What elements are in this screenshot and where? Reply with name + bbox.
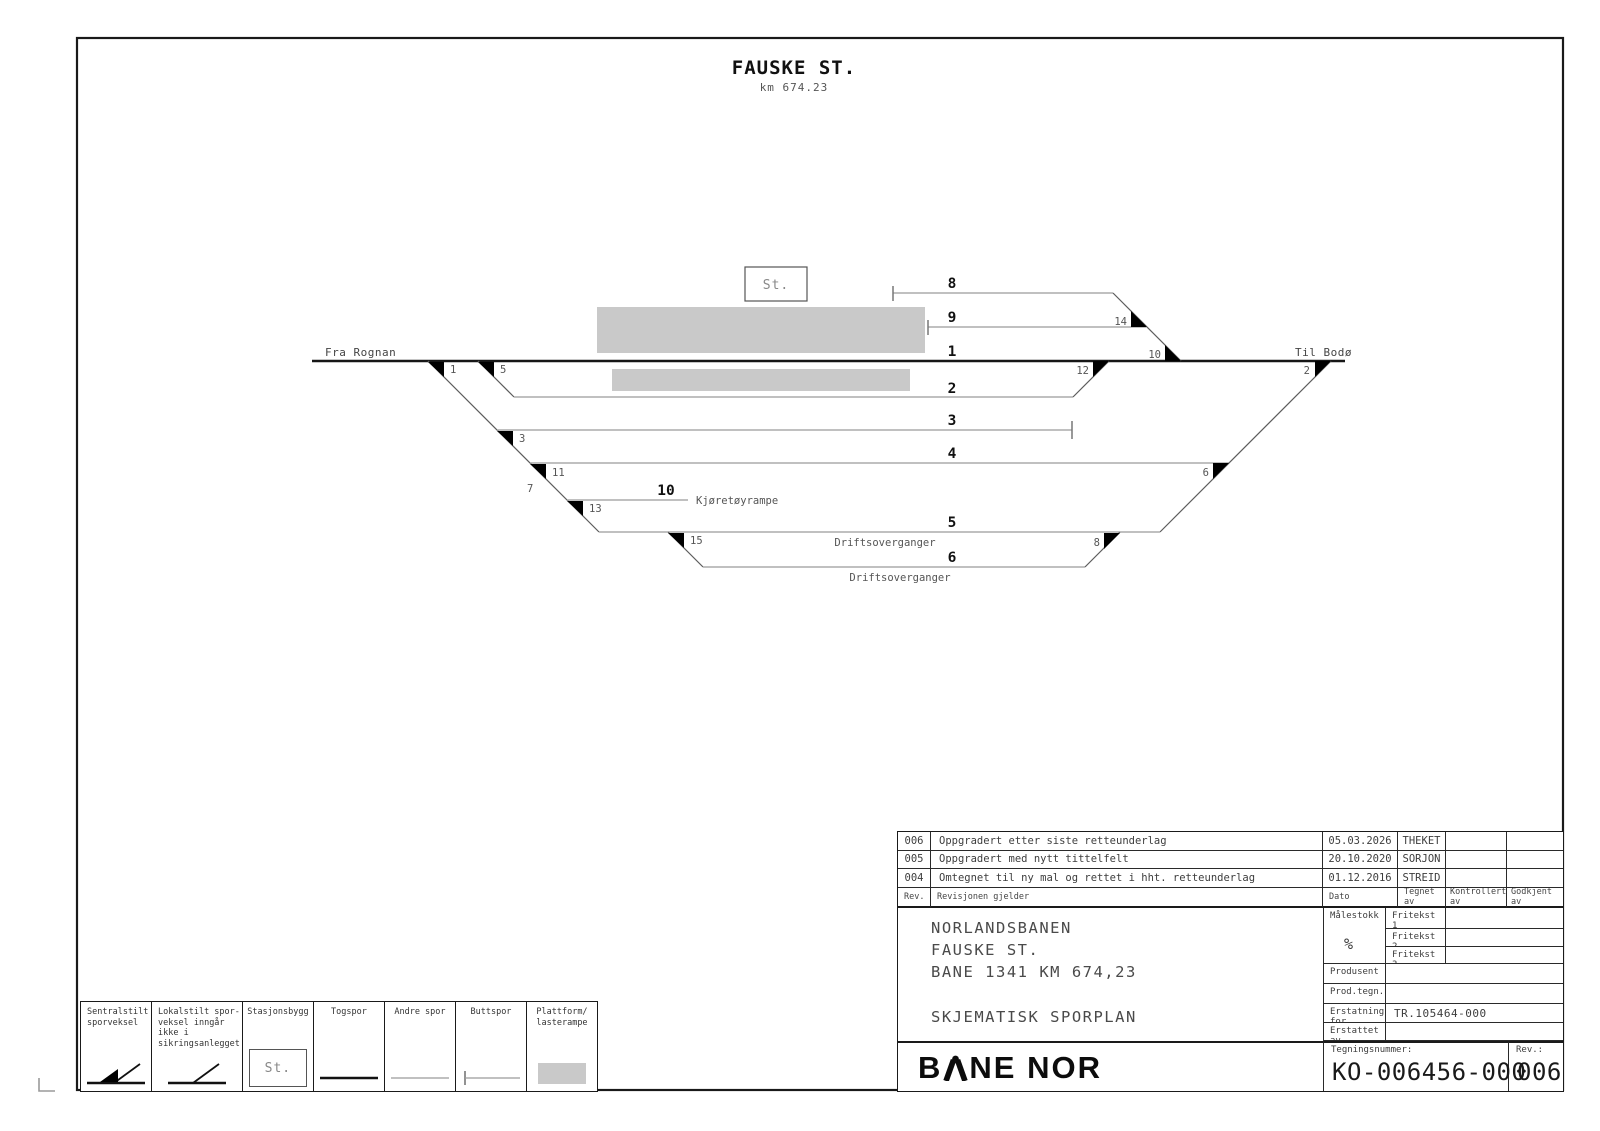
legend-label: Plattform/ lasterampe (527, 1002, 597, 1028)
track-3-number: 3 (948, 413, 957, 429)
erstatning-value: TR.105464-000 (1386, 1004, 1563, 1023)
title-line2: FAUSKE ST. (931, 941, 1039, 959)
revision-date: 01.12.2016 (1323, 869, 1398, 888)
track-10-number: 10 (657, 483, 674, 499)
revision-description: Oppgradert etter siste retteunderlag (931, 832, 1323, 851)
switch-10-label: 10 (1148, 349, 1161, 361)
logo-a-icon (943, 1054, 968, 1081)
drawing-number: KO-006456-000 (1332, 1058, 1526, 1086)
fritekst1-label: Fritekst 1 (1386, 908, 1446, 929)
revision-description: Oppgradert med nytt tittelfelt (931, 851, 1323, 870)
prodtegnnr-label: Prod.tegn.nr. (1324, 984, 1386, 1004)
track-8-number: 8 (948, 276, 957, 292)
rev-label: Rev.: (1516, 1045, 1543, 1055)
legend-label: Lokalstilt spor- veksel inngår ikke i si… (152, 1002, 242, 1049)
revision-header-date: Dato (1323, 888, 1398, 909)
revision-checked-by (1446, 832, 1507, 851)
revision-description: Omtegnet til ny mal og rettet i hht. ret… (931, 869, 1323, 888)
rev-value: 006 (1517, 1058, 1562, 1086)
erstatning-number: TR.105464-000 (1394, 1007, 1487, 1020)
produsent-label: Produsent (1324, 964, 1386, 984)
legend-label: Sentralstilt sporveksel (81, 1002, 151, 1028)
revision-rev: 004 (898, 869, 931, 888)
revision-checked-by (1446, 851, 1507, 870)
revision-date: 20.10.2020 (1323, 851, 1398, 870)
page-title: FAUSKE ST. (594, 57, 994, 79)
title-block-line-group: NORLANDSBANENFAUSKE ST.BANE 1341 KM 674,… (931, 917, 1137, 983)
legend-item-andre-spor: Andre spor (385, 1002, 456, 1091)
prodtegnnr-value (1386, 984, 1563, 1004)
erstatning-label: Erstatning for (1324, 1004, 1386, 1023)
malestokk-value: % (1344, 935, 1353, 953)
local-switch-icon (152, 1061, 242, 1087)
drawing-type-label: SKJEMATISK SPORPLAN (931, 1006, 1137, 1028)
track-5-number: 5 (948, 515, 957, 531)
switch-1-label: 1 (450, 364, 456, 376)
switch-8-label: 8 (1094, 537, 1100, 549)
switch-7-label: 7 (527, 483, 533, 495)
revision-header-checked: Kontrollert av (1446, 888, 1507, 909)
title-line3: BANE 1341 KM 674,23 (931, 963, 1137, 981)
revision-checked-by (1446, 869, 1507, 888)
legend-item-plattform: Plattform/ lasterampe (527, 1002, 597, 1091)
revision-drawn-by: THEKET (1398, 832, 1446, 851)
to-bodo-label: Til Bodø (1295, 346, 1352, 359)
revision-rev: 005 (898, 851, 931, 870)
centralized-switch-icon (81, 1061, 151, 1087)
switch-1-symbol (428, 362, 444, 377)
switch-15-label: 15 (690, 535, 703, 547)
switch-8-symbol (1104, 533, 1120, 549)
revision-approved-by (1507, 832, 1563, 851)
track-6-number: 6 (948, 550, 957, 566)
legend-item-sentralstilt-sporveksel: Sentralstilt sporveksel (81, 1002, 152, 1091)
erstattet-value (1386, 1023, 1563, 1041)
revision-approved-by (1507, 869, 1563, 888)
legend-label: Togspor (314, 1002, 384, 1018)
switch-2-label: 2 (1304, 365, 1310, 377)
track-2-number: 2 (948, 381, 957, 397)
legend-item-buttspor: Buttspor (456, 1002, 527, 1091)
station-building-label: St. (763, 278, 789, 293)
legend-label: Andre spor (385, 1002, 455, 1018)
main-track-icon (314, 1069, 384, 1087)
crossing-label-track6: Driftsoverganger (849, 572, 950, 584)
revision-drawn-by: SORJON (1398, 851, 1446, 870)
revision-header-drawn: Tegnet av (1398, 888, 1446, 909)
legend-label: Buttspor (456, 1002, 526, 1018)
from-rognan-label: Fra Rognan (325, 346, 396, 359)
revision-drawn-by: STREID (1398, 869, 1446, 888)
switch-3-label: 3 (519, 433, 525, 445)
page-title-km: km 674.23 (594, 81, 994, 94)
switch-5-label: 5 (500, 364, 506, 376)
revision-date: 05.03.2026 (1323, 832, 1398, 851)
track-1-number: 1 (948, 344, 957, 360)
logo-text-nenor: NE NOR (969, 1055, 1102, 1081)
station-building-symbol-label: St. (249, 1049, 307, 1087)
switch-3-symbol (497, 431, 513, 446)
switch-12-label: 12 (1076, 365, 1089, 377)
fritekst2-value (1446, 929, 1563, 947)
logo-text-b: B (918, 1055, 942, 1081)
other-track-icon (385, 1069, 455, 1087)
legend-table: Sentralstilt sporveksel Lokalstilt spor-… (80, 1001, 598, 1092)
fritekst2-label: Fritekst 2 (1386, 929, 1446, 947)
revision-header-approved: Godkjent av (1507, 888, 1563, 909)
revision-approved-by (1507, 851, 1563, 870)
erstattet-label: Erstattet av (1324, 1023, 1386, 1041)
tegningsnummer-label: Tegningsnummer: (1331, 1045, 1412, 1055)
track-9-number: 9 (948, 310, 957, 326)
revision-rev: 006 (898, 832, 931, 851)
track-4-number: 4 (948, 446, 957, 462)
fritekst3-value (1446, 947, 1563, 964)
diagonal-right (1160, 361, 1331, 532)
platform-track2 (612, 369, 910, 391)
legend-item-togspor: Togspor (314, 1002, 385, 1091)
produsent-value (1386, 964, 1563, 984)
revision-header-rev: Rev. (898, 888, 931, 909)
malestokk-label: Målestokk (1324, 908, 1386, 964)
switch-11-label: 11 (552, 467, 565, 479)
platform-track1 (597, 307, 925, 353)
dead-end-track-icon (456, 1067, 526, 1087)
title-line1: NORLANDSBANEN (931, 919, 1072, 937)
title-block: 006 Oppgradert etter siste retteunderlag… (897, 831, 1564, 1092)
legend-label: Stasjonsbygg (243, 1002, 313, 1018)
fritekst1-value (1446, 908, 1563, 929)
revision-header-description: Revisjonen gjelder (931, 888, 1323, 909)
crossing-label-track5: Driftsoverganger (834, 537, 935, 549)
bane-nor-logo: BNE NOR (918, 1054, 1102, 1081)
station-building-icon: St. (243, 1049, 313, 1087)
legend-item-lokalstilt-sporveksel: Lokalstilt spor- veksel inngår ikke i si… (152, 1002, 243, 1091)
fritekst3-label: Fritekst 3 (1386, 947, 1446, 964)
legend-item-stasjonsbygg: Stasjonsbygg St. (243, 1002, 314, 1091)
switch-14-label: 14 (1114, 316, 1127, 328)
corner-trim-mark (39, 1078, 55, 1091)
switch-6-label: 6 (1203, 467, 1209, 479)
switch-13-label: 13 (589, 503, 602, 515)
ramp-label: Kjøretøyrampe (696, 495, 778, 507)
platform-icon (527, 1059, 597, 1087)
switch-5-symbol (478, 362, 494, 377)
